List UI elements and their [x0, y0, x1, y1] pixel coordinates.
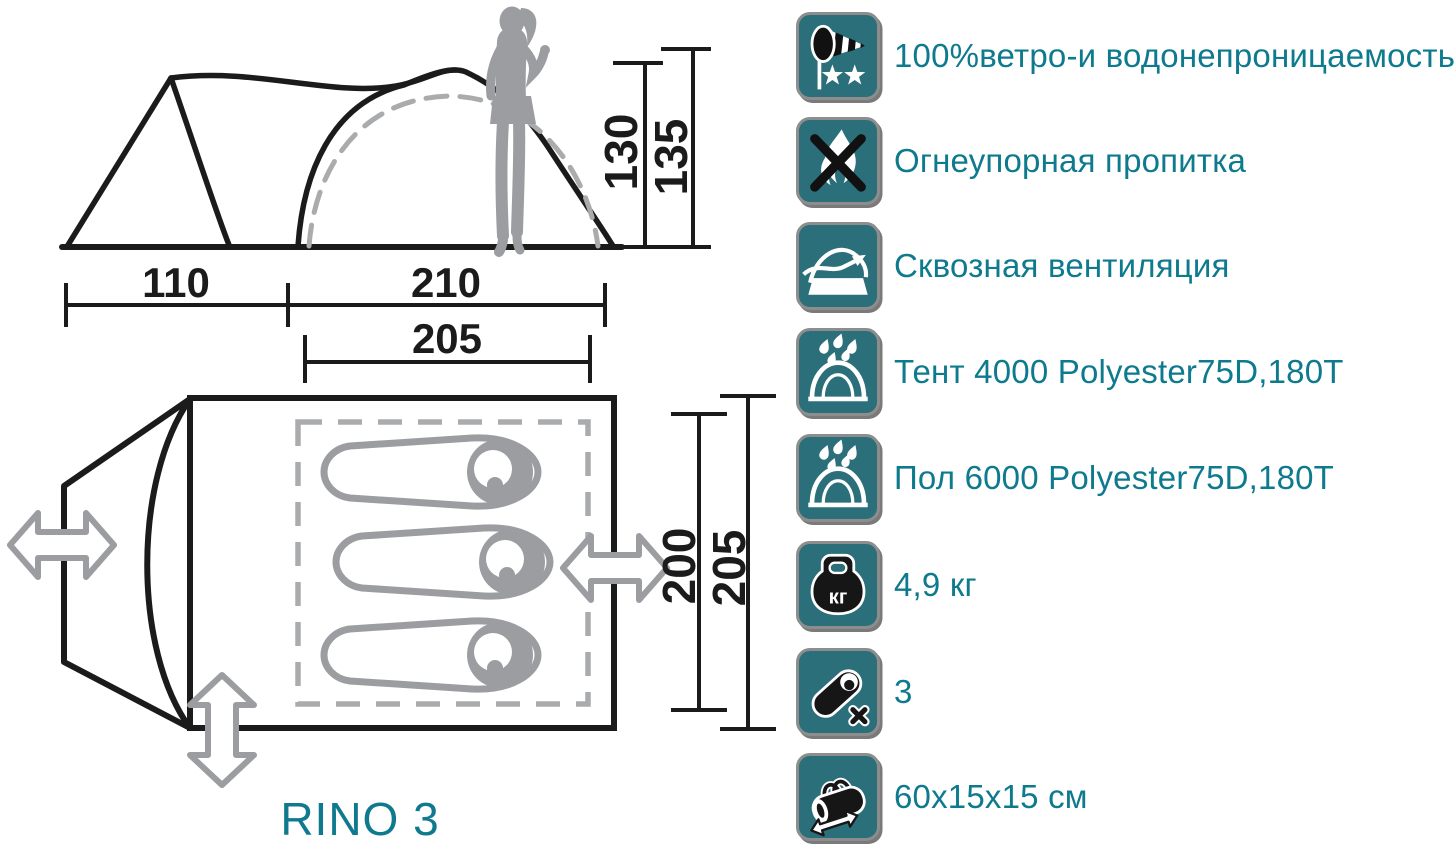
feature-floor-fabric: Пол 6000 Polyester75D,180T	[796, 434, 1334, 522]
tent-diagram: 130 135 110 210 205	[0, 0, 780, 850]
feature-label: 60x15x15 см	[894, 778, 1088, 816]
windsock-icon	[796, 12, 880, 100]
feature-fireproof: Огнеупорная пропитка	[796, 117, 1246, 205]
feature-label: Огнеупорная пропитка	[894, 142, 1246, 180]
sleeping-bag-top	[324, 438, 538, 506]
sleeping-bag-bottom	[324, 621, 538, 689]
sleeping-bag-icon	[796, 648, 880, 736]
rain-tent-icon	[796, 328, 880, 416]
dim-width-left: 110	[142, 259, 210, 306]
feature-label: 100%ветро-и водонепроницаемость	[894, 37, 1455, 75]
product-title: RINO 3	[225, 792, 495, 846]
rain-floor-icon	[796, 434, 880, 522]
feature-label: Пол 6000 Polyester75D,180T	[894, 459, 1334, 497]
feature-label: Тент 4000 Polyester75D,180T	[894, 353, 1344, 391]
floor-vestibule	[64, 399, 190, 728]
floor-plan: 200 205	[10, 396, 776, 785]
dim-height-outer: 135	[645, 119, 697, 196]
feature-label: Сквозная вентиляция	[894, 247, 1230, 285]
star-icon	[822, 64, 843, 84]
tent-spec-sheet: 130 135 110 210 205	[0, 0, 1455, 850]
inner-tent-dashed	[309, 96, 598, 246]
feature-packed-size: 60x15x15 см	[796, 753, 1088, 841]
dome-outline	[298, 70, 613, 246]
feature-weight: кг 4,9 кг	[796, 541, 977, 629]
dim-height-inner: 130	[595, 114, 647, 191]
no-fire-icon	[796, 117, 880, 205]
dim-width-right: 210	[411, 259, 481, 306]
weight-icon-text: кг	[829, 587, 848, 609]
feature-ventilation: Сквозная вентиляция	[796, 222, 1230, 310]
feature-fly-fabric: Тент 4000 Polyester75D,180T	[796, 328, 1344, 416]
vestibule-left-edge	[68, 78, 171, 245]
star-icon	[844, 64, 865, 84]
weight-icon: кг	[796, 541, 880, 629]
side-view	[62, 70, 622, 247]
feature-windproof: 100%ветро-и водонепроницаемость	[796, 12, 1455, 100]
feature-label: 3	[894, 673, 913, 711]
dim-depth-outer: 205	[703, 530, 755, 607]
vestibule-right-edge	[171, 78, 229, 245]
ventilation-icon	[796, 222, 880, 310]
sleeping-bag-middle	[336, 528, 550, 596]
dim-depth-inner: 200	[653, 528, 705, 605]
carry-bag-icon	[796, 753, 880, 841]
dim-width-inner: 205	[412, 315, 482, 362]
feature-capacity: 3	[796, 648, 913, 736]
feature-label: 4,9 кг	[894, 566, 977, 604]
floor-vestibule-arc	[147, 399, 190, 728]
